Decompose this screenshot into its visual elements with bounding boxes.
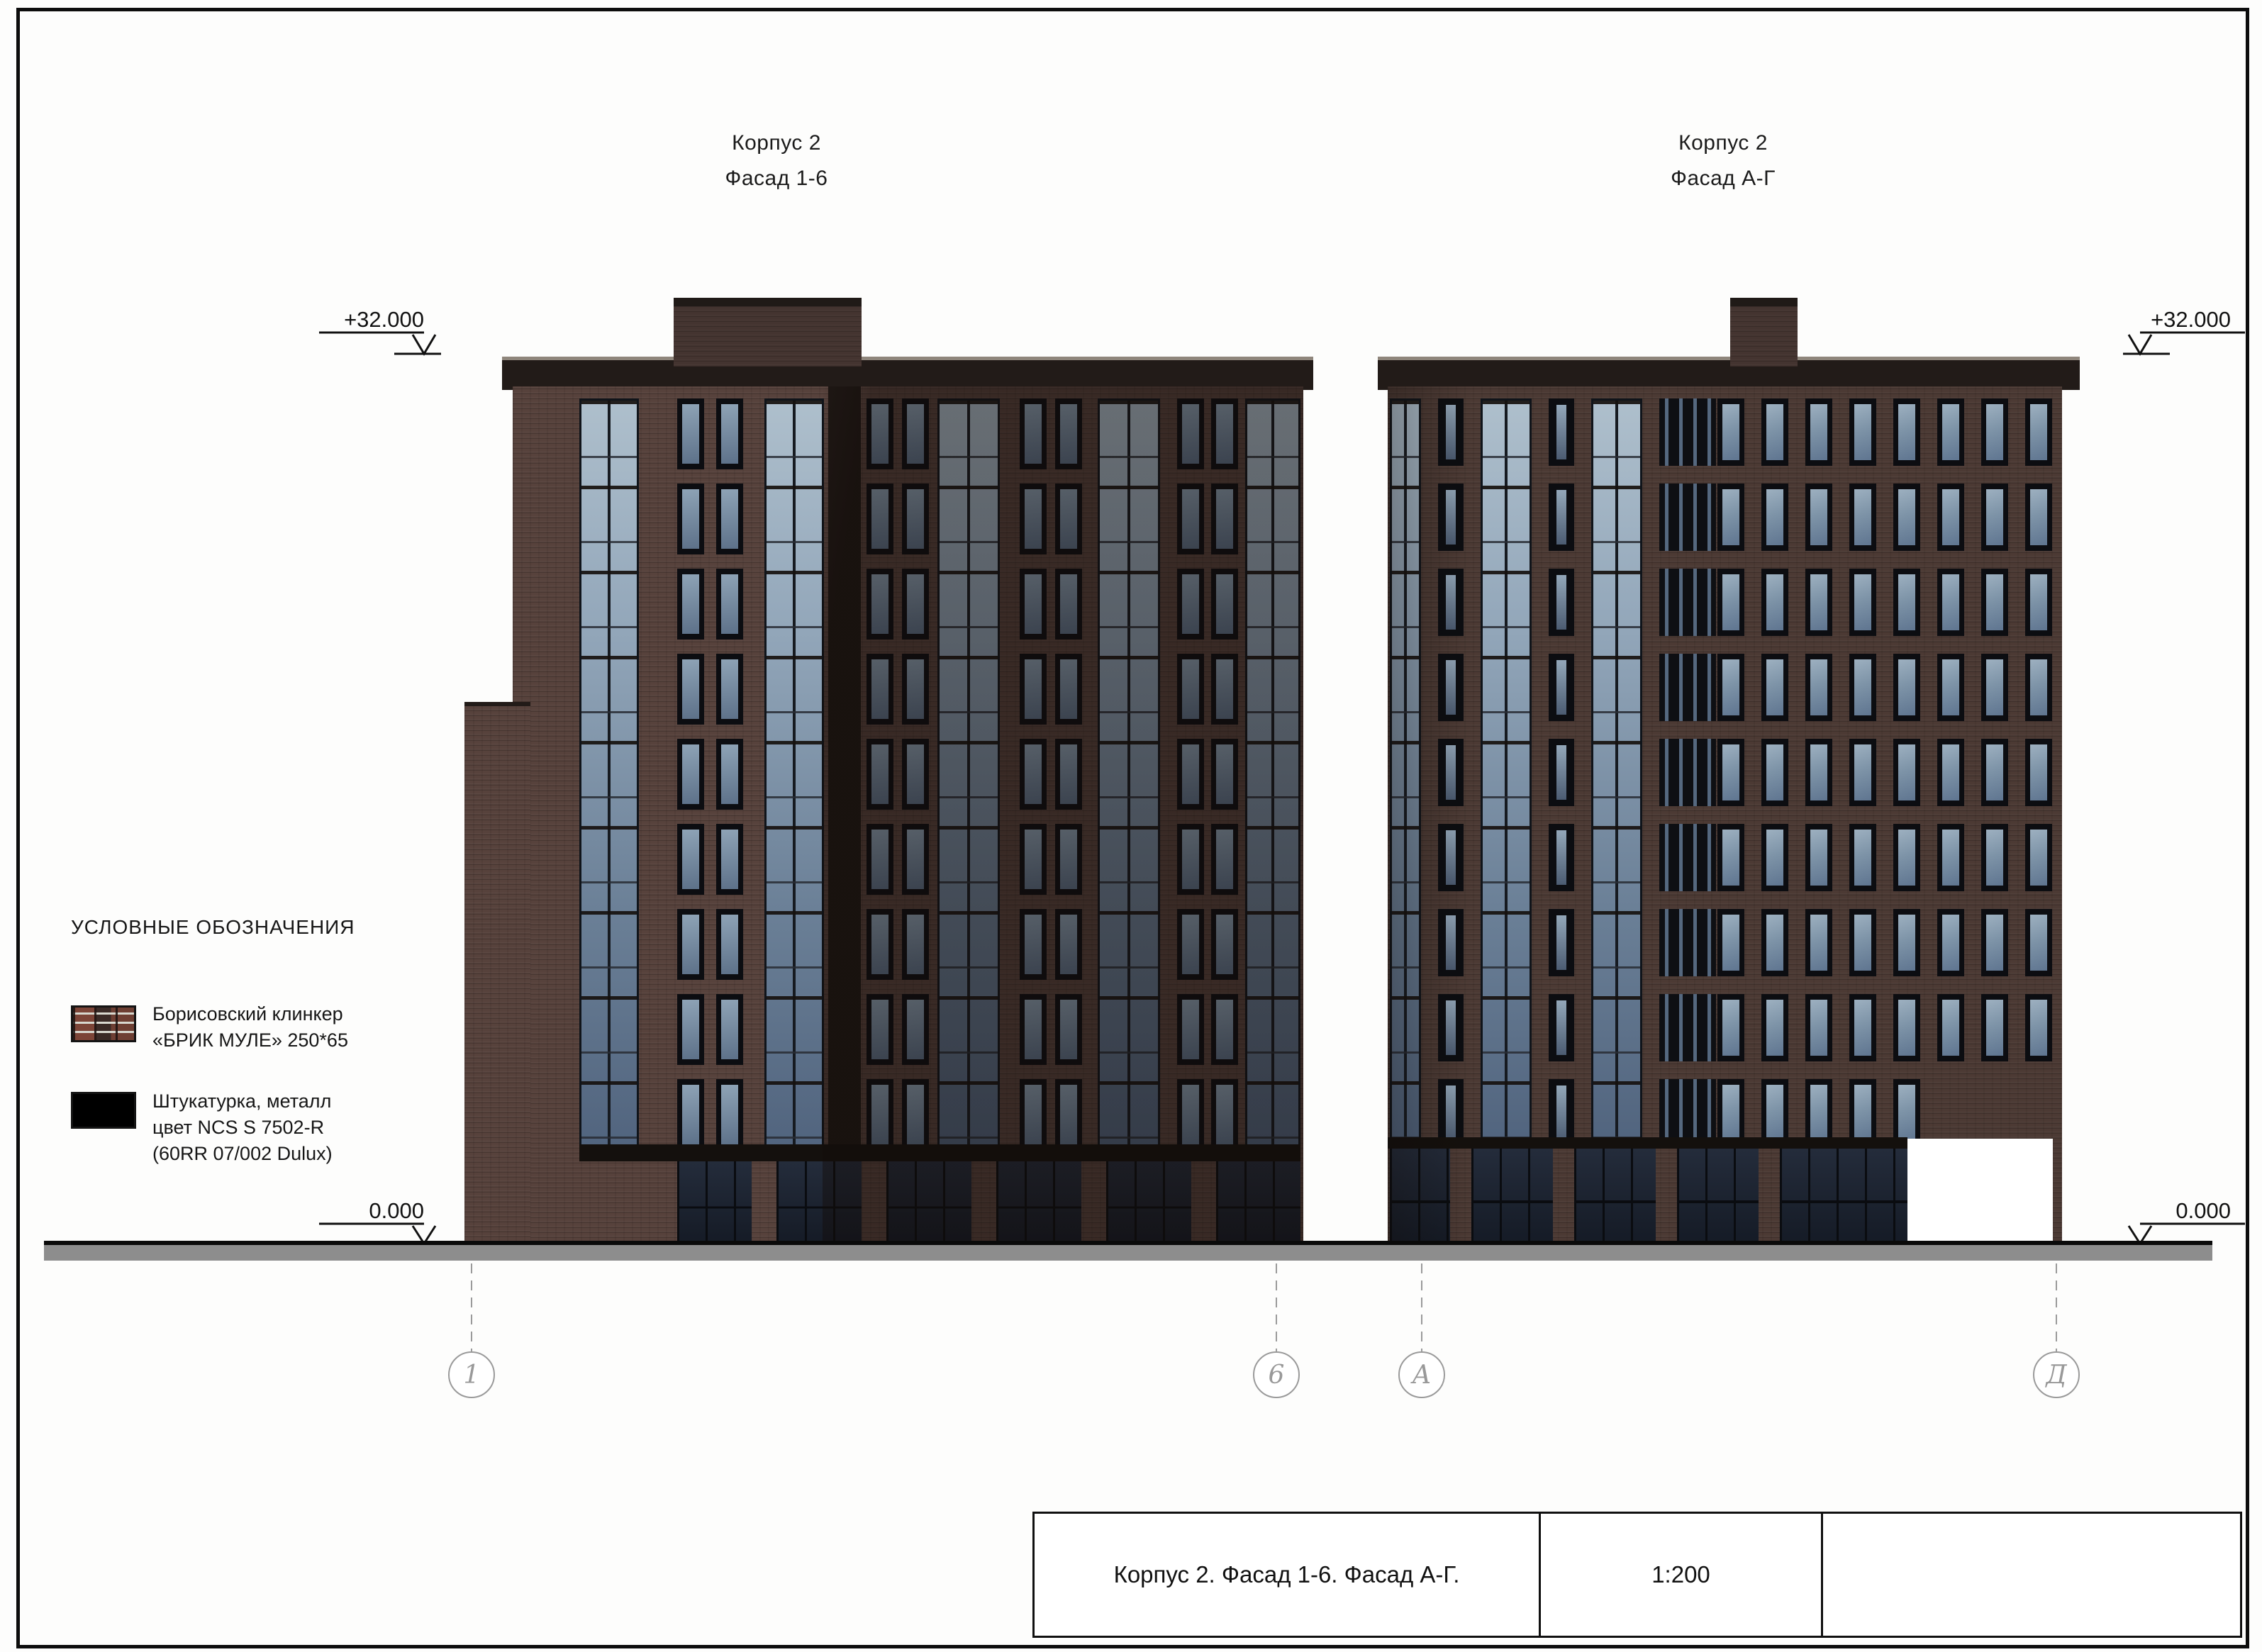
window [1893,654,1920,721]
grid-axis-line-1 [471,1263,472,1351]
window-glass [1898,915,1915,971]
window [1849,654,1876,721]
window [1849,824,1876,891]
window-glass [721,404,738,464]
building2-cornice [1378,357,2080,390]
window-glass [2030,404,2047,460]
ground-hatch-band [44,1245,2212,1261]
window [1937,569,1964,636]
window [1761,654,1788,721]
window-glass [1810,1000,1827,1056]
window-glass [1556,915,1566,970]
building2-passage-opening [1907,1139,2053,1243]
window-glass [1898,1085,1915,1141]
window [716,484,743,554]
window-glass [1722,830,1739,886]
window [1937,739,1964,806]
window [677,654,704,725]
grid-bubble-А: А [1398,1351,1445,1398]
window-glass [1766,574,1783,630]
window [1805,569,1832,636]
window [2025,994,2052,1061]
window-glass [1766,1000,1783,1056]
window [716,654,743,725]
window [1549,1079,1574,1146]
window-glass [1722,574,1739,630]
window-glass [1986,404,2003,460]
window-glass [721,915,738,974]
slit-window-group [1659,484,1716,551]
window-glass [1556,405,1566,459]
window-glass [682,915,699,974]
window [1805,1079,1832,1146]
window-glass [1898,574,1915,630]
window [1549,569,1574,636]
window [716,1079,743,1150]
window [1717,398,1744,466]
storefront-glazing [1574,1149,1656,1243]
window [1805,654,1832,721]
window [2025,569,2052,636]
window [2025,824,2052,891]
window-glass [682,659,699,719]
window-glass [1942,404,1959,460]
storefront-glazing [1677,1149,1759,1243]
window [1717,739,1744,806]
window [1849,569,1876,636]
window [1761,484,1788,551]
window [1549,909,1574,976]
grid-bubble-6: 6 [1253,1351,1300,1398]
building1-cornice [502,357,1313,390]
window-glass [1942,659,1959,715]
window [1761,398,1788,466]
window [1849,398,1876,466]
window-glass [1810,574,1827,630]
window-glass [682,404,699,464]
legend-line: Борисовский клинкер [152,1001,408,1027]
window-glass [1722,404,1739,460]
slit-window-group [1659,824,1716,891]
window [1717,1079,1744,1146]
window [1981,994,2008,1061]
window-glass [1854,404,1871,460]
window-glass [1854,1000,1871,1056]
legend-swatch-plaster [71,1092,136,1129]
window-glass [1722,915,1739,971]
window [1981,909,2008,976]
title-block-empty-cell [1823,1514,2240,1636]
window [2025,398,2052,466]
window-glass [1556,830,1566,885]
window-glass [1942,1000,1959,1056]
window-glass [1898,404,1915,460]
window [1849,739,1876,806]
legend-line: (60RR 07/002 Dulux) [152,1141,408,1167]
window-glass [1810,915,1827,971]
grid-axis-line-А [1421,1263,1422,1351]
window-glass [1556,490,1566,545]
window [1981,739,2008,806]
window-glass [1810,744,1827,800]
window [716,909,743,980]
window [677,398,704,469]
window-glass [1810,1085,1827,1141]
window [1849,994,1876,1061]
window [716,569,743,640]
window-glass [1986,830,2003,886]
drawing-sheet: Корпус 2 Фасад 1-6 Корпус 2 Фасад А-Г +3… [0,0,2262,1652]
window [716,824,743,895]
window-glass [1854,574,1871,630]
window [2025,739,2052,806]
window-glass [1722,744,1739,800]
window-glass [721,1000,738,1059]
window [677,739,704,810]
window [1549,398,1574,466]
window-glass [2030,1000,2047,1056]
title-block: Корпус 2. Фасад 1-6. Фасад А-Г. 1:200 [1032,1512,2242,1638]
window-glass [1766,1085,1783,1141]
window [1937,398,1964,466]
window [1761,569,1788,636]
legend-line: Штукатурка, металл [152,1088,408,1115]
window-glass [1898,489,1915,545]
window [716,739,743,810]
window-glass [1942,574,1959,630]
facade-drawing-area: 16АД [0,0,2262,1652]
window [1761,739,1788,806]
window [1717,569,1744,636]
window-glass [1722,489,1739,545]
window-glass [682,574,699,634]
window-glass [2030,915,2047,971]
legend-line: цвет NCS S 7502-R [152,1115,408,1141]
legend-title: УСЛОВНЫЕ ОБОЗНАЧЕНИЯ [71,916,355,939]
storefront-glazing [677,1161,752,1243]
window [1717,824,1744,891]
window-glass [1986,744,2003,800]
window [1849,1079,1876,1146]
window-glass [1854,744,1871,800]
window-glass [1556,575,1566,630]
window-glass [1986,1000,2003,1056]
window-glass [1722,1085,1739,1141]
title-block-drawing-name: Корпус 2. Фасад 1-6. Фасад А-Г. [1035,1514,1541,1636]
window [1717,654,1744,721]
window [1805,398,1832,466]
window-glass [1898,1000,1915,1056]
window [1893,739,1920,806]
window [1549,739,1574,806]
window [1717,994,1744,1061]
window-glass [1810,404,1827,460]
window-glass [1942,744,1959,800]
window [1805,739,1832,806]
window [677,1079,704,1150]
window-glass [1810,830,1827,886]
window [1937,654,1964,721]
window [716,994,743,1065]
storefront-glazing [1471,1149,1553,1243]
glazing-strip [1591,398,1642,1146]
slit-window-group [1659,909,1716,976]
window [677,824,704,895]
glazing-strip [1481,398,1532,1146]
glazing-strip [579,398,639,1150]
grid-bubble-1: 1 [448,1351,495,1398]
legend-item-brick: Борисовский клинкер «БРИК МУЛЕ» 250*65 [152,1001,408,1054]
window-glass [1556,745,1566,800]
window [1981,824,2008,891]
window-glass [721,1085,738,1144]
window-glass [682,830,699,889]
window [677,994,704,1065]
window-glass [1722,659,1739,715]
grid-axis-line-Д [2056,1263,2057,1351]
window [1893,824,1920,891]
glazing-strip [764,398,824,1150]
window [1893,484,1920,551]
window-glass [721,830,738,889]
window [1937,909,1964,976]
slit-window-group [1659,994,1716,1061]
window-glass [1942,830,1959,886]
window [1549,484,1574,551]
window-glass [721,574,738,634]
window [1761,1079,1788,1146]
window-glass [1556,660,1566,715]
storefront-glazing [1780,1149,1907,1243]
window [1717,909,1744,976]
window [1893,569,1920,636]
window [1937,994,1964,1061]
window-glass [1898,659,1915,715]
window-glass [1810,659,1827,715]
window-glass [721,489,738,549]
window-glass [682,744,699,804]
window-glass [1810,489,1827,545]
window-glass [1766,830,1783,886]
window [1893,994,1920,1061]
window-glass [1766,659,1783,715]
window [1805,484,1832,551]
window-glass [1986,574,2003,630]
window-glass [1722,1000,1739,1056]
window-glass [1854,830,1871,886]
window [1937,824,1964,891]
window [1549,994,1574,1061]
window-glass [2030,830,2047,886]
building1-shadow-overlay [823,386,1303,1243]
window-glass [1556,1085,1566,1140]
window-glass [721,659,738,719]
window [1893,909,1920,976]
window-glass [2030,744,2047,800]
window-glass [1986,489,2003,545]
legend-item-plaster: Штукатурка, металл цвет NCS S 7502-R (60… [152,1088,408,1167]
window [1761,994,1788,1061]
window [677,484,704,554]
window-glass [1766,744,1783,800]
window-glass [2030,574,2047,630]
window-glass [1942,489,1959,545]
window [1893,1079,1920,1146]
window-glass [1898,744,1915,800]
window [1937,484,1964,551]
window-glass [1766,404,1783,460]
window-glass [2030,489,2047,545]
window-glass [1986,659,2003,715]
window [1849,909,1876,976]
legend-swatch-brick [71,1005,136,1042]
window-glass [2030,659,2047,715]
window [677,569,704,640]
window [2025,909,2052,976]
window-glass [1556,1000,1566,1055]
window [1981,398,2008,466]
window-glass [682,489,699,549]
window-glass [1854,1085,1871,1141]
window [1761,824,1788,891]
window [1981,569,2008,636]
window-glass [1942,915,1959,971]
window [1849,484,1876,551]
window-glass [1766,489,1783,545]
window [1549,654,1574,721]
window [1805,909,1832,976]
window-glass [1854,489,1871,545]
slit-window-group [1659,654,1716,721]
window-glass [721,744,738,804]
building1-annex-wing [464,702,530,1247]
grid-bubble-Д: Д [2033,1351,2080,1398]
window [2025,654,2052,721]
slit-window-group [1659,569,1716,636]
window-glass [1898,830,1915,886]
building2-shadow-overlay [1388,386,1473,1243]
window [1761,909,1788,976]
window-glass [1854,659,1871,715]
building1-penthouse [674,298,862,367]
window-glass [682,1085,699,1144]
window [1717,484,1744,551]
legend-line: «БРИК МУЛЕ» 250*65 [152,1027,408,1054]
window [1805,994,1832,1061]
window [1549,824,1574,891]
window [2025,484,2052,551]
window [1805,824,1832,891]
window-glass [1854,915,1871,971]
slit-window-group [1659,1079,1716,1146]
window-glass [1986,915,2003,971]
title-block-scale: 1:200 [1541,1514,1823,1636]
window [1893,398,1920,466]
grid-axis-line-6 [1276,1263,1277,1351]
slit-window-group [1659,739,1716,806]
window [677,909,704,980]
window [1981,654,2008,721]
window-glass [1766,915,1783,971]
window [716,398,743,469]
slit-window-group [1659,398,1716,466]
building2-penthouse [1730,298,1798,367]
window-glass [682,1000,699,1059]
window [1981,484,2008,551]
